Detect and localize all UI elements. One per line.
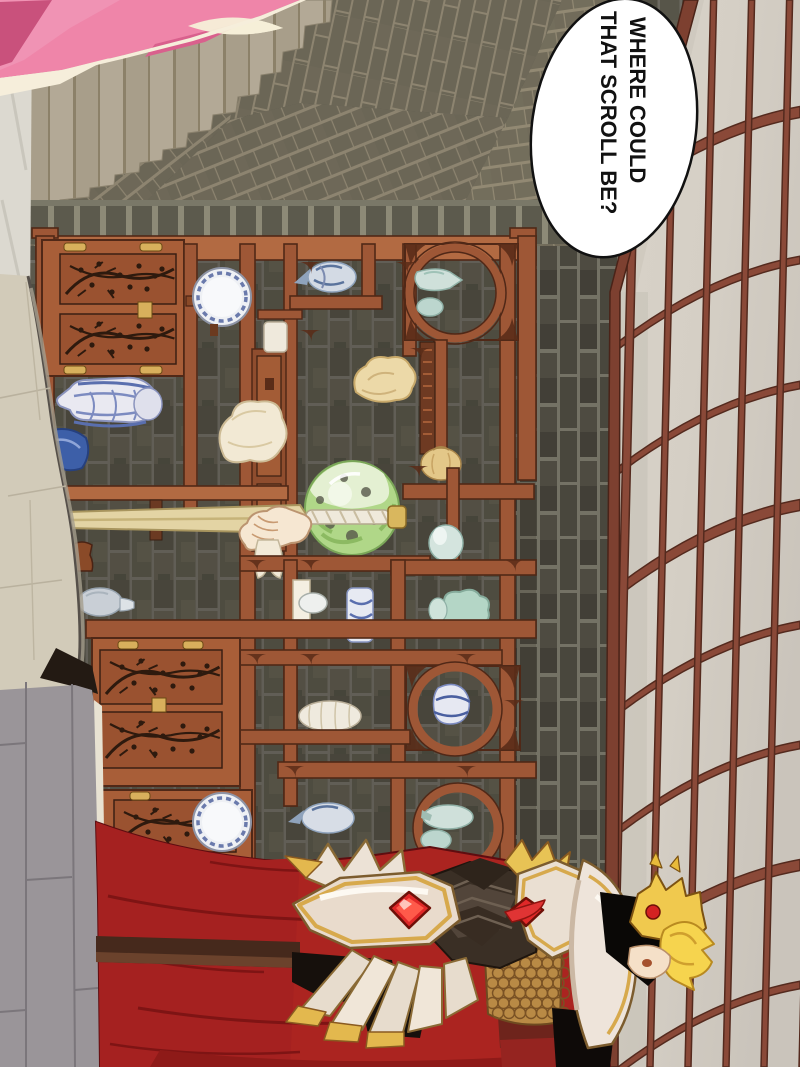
svg-text:WHERE COULD: WHERE COULD — [625, 17, 650, 183]
svg-text:THAT SCROLL BE?: THAT SCROLL BE? — [596, 11, 621, 214]
